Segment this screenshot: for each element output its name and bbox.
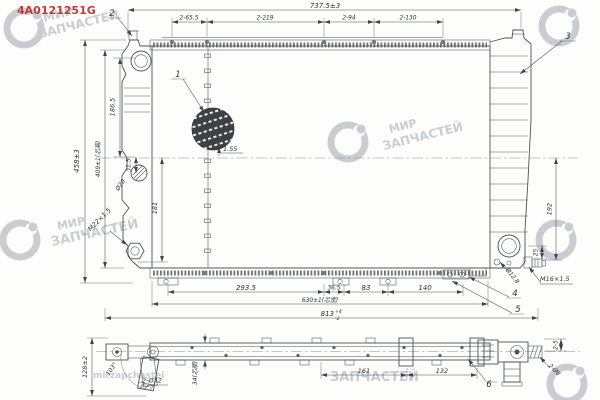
mount-hole xyxy=(170,40,174,44)
arrowhead xyxy=(160,256,164,262)
dim-port-diameter: Ø20 xyxy=(114,178,127,193)
rivet-mark xyxy=(224,354,227,357)
dim-overall-width: 737.5±3 xyxy=(310,2,340,10)
arrowhead xyxy=(203,361,207,367)
tube-tab xyxy=(205,99,211,103)
arrowhead xyxy=(118,58,122,64)
arrowhead xyxy=(83,40,87,46)
arrowhead xyxy=(160,158,164,164)
rivet-mark xyxy=(438,354,441,357)
dim-bottom-seg2: 36.5 xyxy=(327,286,340,292)
dim-fitting-offset: 25 xyxy=(534,249,540,257)
tube-tab xyxy=(205,159,211,163)
arrowhead xyxy=(368,20,374,24)
arrowhead xyxy=(121,240,127,245)
callout-4: 4 xyxy=(512,289,517,299)
callout-5: 5 xyxy=(515,305,520,315)
arrowhead xyxy=(452,281,458,286)
mount-foot xyxy=(333,278,349,285)
bottom-header-tank xyxy=(150,268,490,285)
arrowhead xyxy=(324,20,330,24)
mount-hole xyxy=(441,40,445,44)
rivet-mark xyxy=(296,354,299,357)
dim-bottom-seg4: 140 xyxy=(418,284,432,292)
rivet-mark xyxy=(332,346,335,349)
arrowhead xyxy=(203,337,207,343)
radiator-core xyxy=(152,46,490,268)
part-number: 4A0121251G xyxy=(17,4,96,17)
dim-bottom-seg3: 83 xyxy=(362,284,371,292)
arrowhead xyxy=(559,345,563,351)
radiator-technical-drawing: МИР ЗАПЧАСТЕЙ МИР ЗАПЧАСТЕЙ МИР ЗАПЧАСТЕ… xyxy=(0,0,600,400)
arrowhead xyxy=(559,339,563,345)
arrowhead xyxy=(532,316,538,320)
arrowhead xyxy=(134,167,138,173)
arrowhead xyxy=(168,290,174,294)
dim-overall-tol-up: +4 xyxy=(335,309,342,315)
arrowhead xyxy=(469,277,475,281)
arrowhead xyxy=(201,20,207,24)
dim-left-offset: 31.5 xyxy=(127,158,133,171)
arrowhead xyxy=(374,20,380,24)
arrowhead xyxy=(437,20,443,24)
tube-tab xyxy=(205,219,211,223)
rivet-mark xyxy=(402,346,405,349)
arrowhead xyxy=(457,290,463,294)
dim-top-seg2: 2-219 xyxy=(256,16,273,22)
tube-tab xyxy=(205,54,211,58)
dim-core-width: 630±1(芯宽) xyxy=(302,297,338,304)
arrowhead xyxy=(128,8,134,12)
dim-end-slots: 2-5 xyxy=(554,340,560,350)
tube-tab xyxy=(205,69,211,73)
arrowhead xyxy=(520,69,526,74)
arrowhead xyxy=(515,8,521,12)
dim-core-height: 409±1(芯高) xyxy=(95,141,102,177)
dim-left-lower: 181 xyxy=(151,202,159,214)
watermark-logo xyxy=(331,125,366,160)
label-pipes: 2-Ø32 xyxy=(142,377,162,385)
arrowhead xyxy=(318,20,324,24)
dim-side-seg1: 161 xyxy=(358,367,370,375)
arrowhead xyxy=(118,151,122,157)
dim-top-seg1: 2-65.5 xyxy=(180,16,199,22)
callout-1: 1 xyxy=(175,70,180,80)
mount-hole xyxy=(322,40,326,44)
dim-overall-assembly: 813 xyxy=(321,310,334,318)
watermarks: МИР ЗАПЧАСТЕЙ МИР ЗАПЧАСТЕЙ МИР ЗАПЧАСТЕ… xyxy=(3,4,585,400)
dim-overall-tol-dn: -2 xyxy=(335,316,340,322)
tank-ribs xyxy=(490,56,528,232)
arrowhead xyxy=(105,316,111,320)
dim-overall-height: 458±3 xyxy=(73,149,81,173)
tube-tab xyxy=(205,84,211,88)
label-fitting-thread: M16×1.5 xyxy=(540,275,570,283)
dim-fin-pitch: 1.55 xyxy=(223,145,237,153)
arrowhead xyxy=(152,302,158,306)
dim-left-upper: 186.5 xyxy=(109,98,117,117)
dim-outlet-drop: 192 xyxy=(546,203,554,215)
callout-3: 3 xyxy=(565,32,570,42)
tube-tab xyxy=(205,204,211,208)
tube-tab xyxy=(205,249,211,253)
mount-hole xyxy=(205,40,209,44)
arrowhead xyxy=(172,20,178,24)
arrowhead xyxy=(318,290,324,294)
dim-side-seg2: 132 xyxy=(436,367,448,375)
arrowhead xyxy=(554,158,558,164)
top-header-tank xyxy=(150,38,490,51)
watermark-text: ЗАПЧАСТЕЙ xyxy=(330,369,419,385)
dim-core-thickness: 34(芯厚) xyxy=(192,361,199,385)
rivet-mark xyxy=(366,354,369,357)
arrowhead xyxy=(344,290,350,294)
dim-top-seg3: 2-94 xyxy=(342,16,356,22)
clamp-bracket xyxy=(399,338,413,366)
arrowhead xyxy=(90,390,94,396)
watermark-logo xyxy=(542,9,577,44)
callout-2: 2 xyxy=(109,9,114,19)
arrowhead xyxy=(83,277,87,283)
arrowhead xyxy=(321,373,327,377)
drain-plug xyxy=(126,243,144,259)
front-view: 1.55 xyxy=(73,2,578,322)
lower-pipe xyxy=(504,362,520,382)
arrowhead xyxy=(103,50,107,56)
arrowhead xyxy=(90,338,94,344)
arrowhead xyxy=(207,20,213,24)
rivet-mark xyxy=(460,346,463,349)
drawing-canvas: МИР ЗАПЧАСТЕЙ МИР ЗАПЧАСТЕЙ МИР ЗАПЧАСТЕ… xyxy=(0,0,600,400)
watermark-logo xyxy=(3,223,38,258)
rivet-mark xyxy=(260,346,263,349)
callout-6: 6 xyxy=(486,380,492,390)
dim-side-height: 128±2 xyxy=(81,356,89,378)
dim-top-seg4: 2-130 xyxy=(399,16,416,22)
mount-hole xyxy=(372,40,376,44)
arrowhead xyxy=(388,290,394,294)
bottom-view: 128±2 103° 2-Ø32 34(芯厚) 161 132 2-5 2-Ø8… xyxy=(81,334,580,396)
arrowhead xyxy=(382,290,388,294)
dim-pipe-diameter: Ø12.8 xyxy=(503,266,520,285)
tube-row xyxy=(205,46,211,268)
tube-tab xyxy=(205,174,211,178)
dim-bottom-seg1: 293.5 xyxy=(236,284,257,292)
rivet-mark xyxy=(190,346,193,349)
arrowhead xyxy=(471,373,477,377)
arrowhead xyxy=(103,262,107,268)
arrowhead xyxy=(482,302,488,306)
fin-detail: 1.55 xyxy=(188,107,243,156)
outlet-port xyxy=(498,235,520,257)
tube-tab xyxy=(205,234,211,238)
tube-tab xyxy=(205,189,211,193)
filler-neck xyxy=(131,51,151,71)
